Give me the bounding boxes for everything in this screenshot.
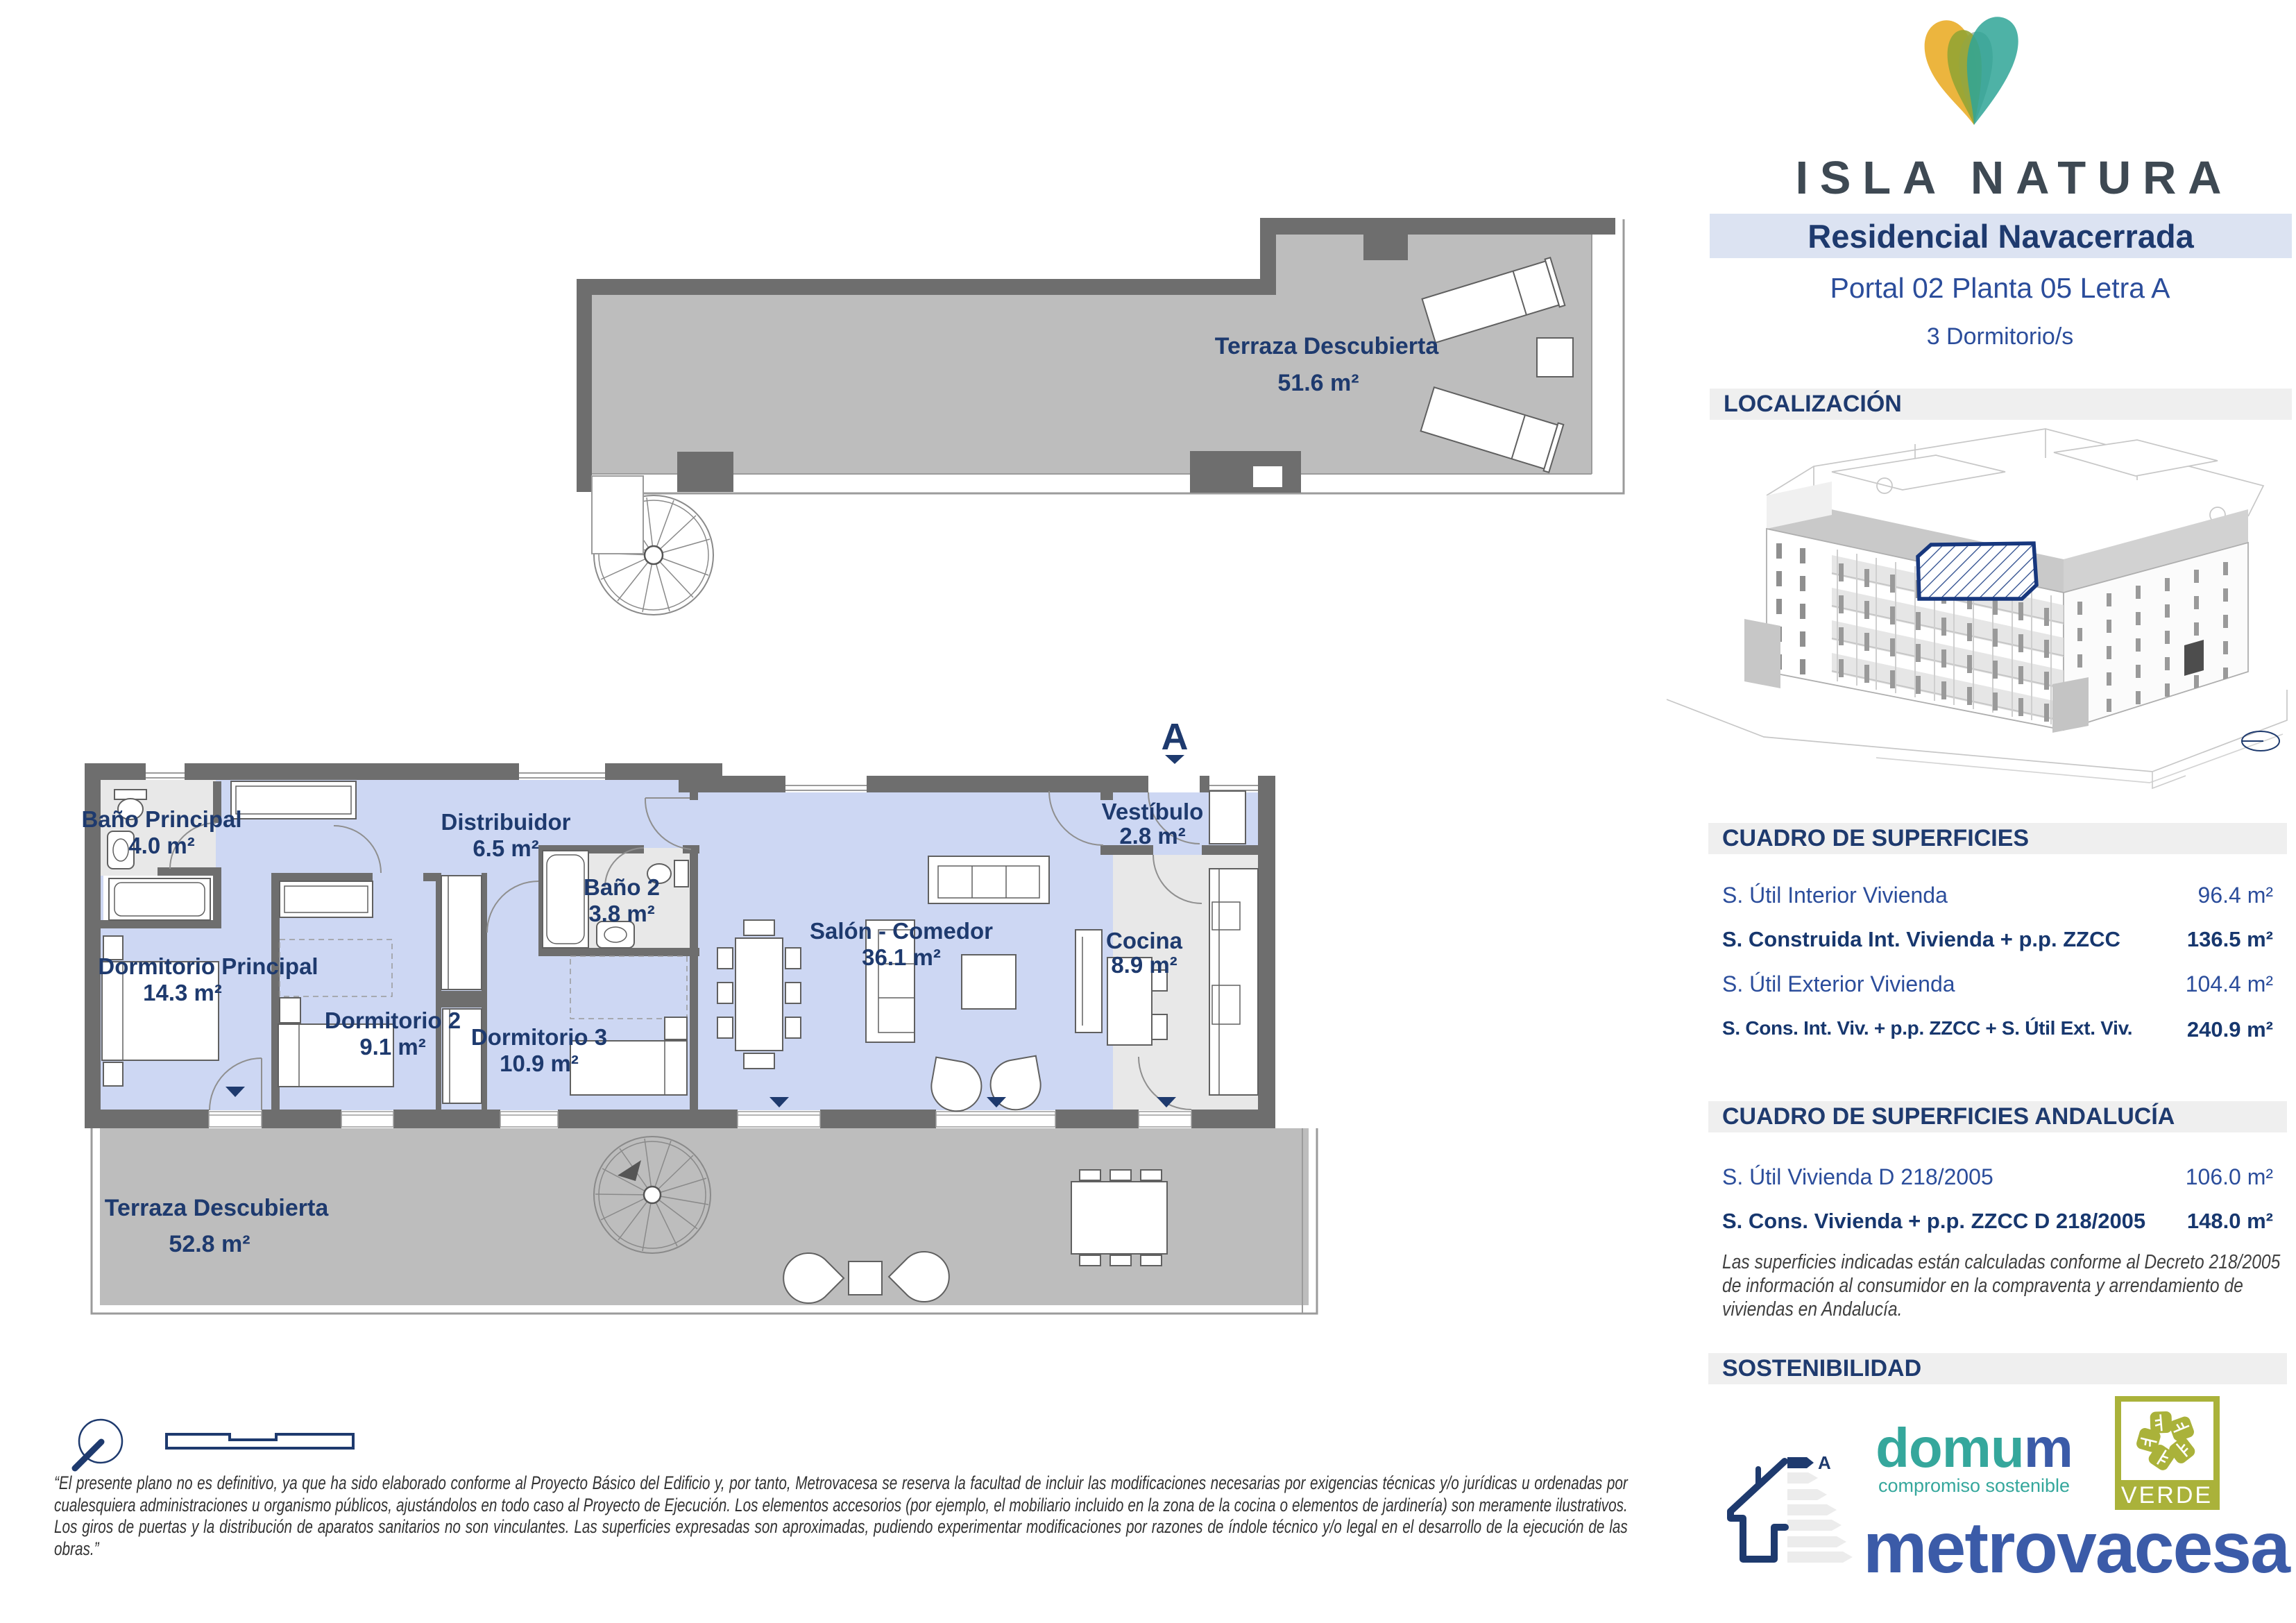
svg-text:A: A: [1162, 716, 1189, 758]
svg-text:Baño 2: Baño 2: [584, 874, 660, 900]
svg-text:Dormitorio Principal: Dormitorio Principal: [98, 953, 318, 979]
svg-text:14.3 m²: 14.3 m²: [143, 980, 222, 1005]
svg-text:3.8 m²: 3.8 m²: [588, 901, 654, 926]
svg-text:36.1 m²: 36.1 m²: [862, 944, 941, 970]
svg-text:Terraza Descubierta: Terraza Descubierta: [1215, 333, 1440, 359]
svg-text:Salón - Comedor: Salón - Comedor: [810, 918, 993, 944]
svg-text:6.5 m²: 6.5 m²: [473, 835, 538, 861]
svg-text:Dormitorio 2: Dormitorio 2: [325, 1008, 461, 1033]
svg-text:4.0 m²: 4.0 m²: [128, 833, 194, 858]
svg-text:9.1 m²: 9.1 m²: [359, 1034, 425, 1060]
svg-text:52.8 m²: 52.8 m²: [169, 1231, 250, 1257]
svg-text:Dormitorio 3: Dormitorio 3: [471, 1024, 607, 1050]
svg-text:Baño Principal: Baño Principal: [81, 806, 241, 832]
svg-text:Distribuidor: Distribuidor: [441, 809, 571, 835]
svg-text:51.6 m²: 51.6 m²: [1277, 370, 1359, 396]
svg-text:10.9 m²: 10.9 m²: [500, 1051, 579, 1076]
svg-text:Cocina: Cocina: [1106, 928, 1183, 953]
svg-text:Terraza Descubierta: Terraza Descubierta: [105, 1195, 330, 1221]
svg-text:8.9 m²: 8.9 m²: [1111, 952, 1177, 978]
svg-text:Vestíbulo: Vestíbulo: [1102, 799, 1204, 824]
svg-text:2.8 m²: 2.8 m²: [1119, 823, 1185, 849]
